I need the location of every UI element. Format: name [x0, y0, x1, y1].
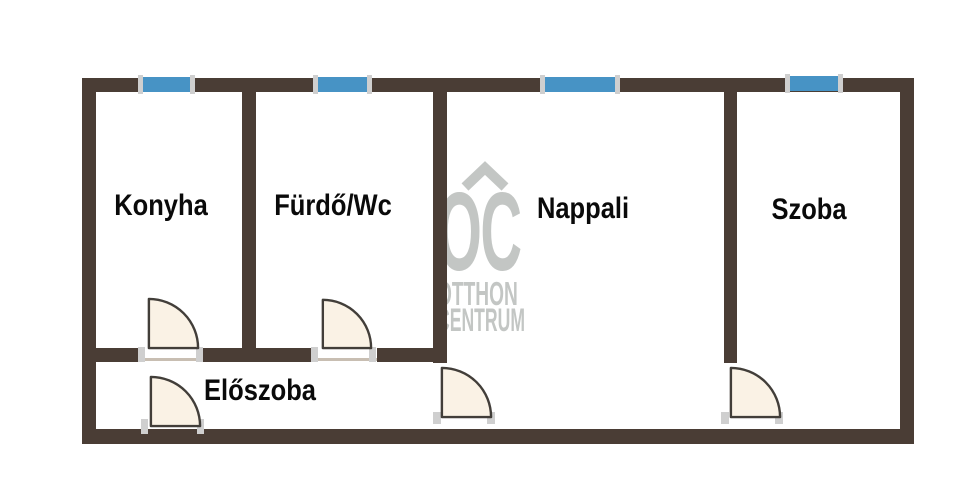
window-jamb-left	[138, 75, 143, 94]
wall-konyha-furdo	[242, 92, 256, 362]
wall-eloszoba-left	[96, 348, 142, 362]
room-label-furdo: Fürdő/Wc	[274, 191, 392, 221]
wall-eloszoba-right	[377, 348, 433, 362]
door-furdo	[320, 297, 373, 350]
door-nappali	[439, 365, 493, 419]
wall-right	[900, 78, 914, 444]
window-nappali	[545, 77, 615, 92]
door-entry	[148, 374, 202, 428]
window-jamb-left	[785, 74, 790, 93]
wall-left	[82, 78, 96, 444]
window-jamb-right	[367, 75, 372, 94]
watermark-logo: OC	[437, 177, 520, 288]
door-jamb	[141, 419, 148, 434]
floor-plan: OC OTTHON CENTRUM	[0, 0, 971, 500]
window-szoba	[790, 76, 838, 91]
room-label-eloszoba: Előszoba	[204, 376, 316, 406]
wall-nappali-szoba	[724, 92, 737, 363]
threshold-konyha-door	[142, 358, 202, 361]
door-szoba	[728, 365, 782, 419]
window-furdo	[318, 77, 367, 92]
window-konyha	[143, 77, 190, 92]
window-jamb-left	[313, 75, 318, 94]
wall-eloszoba-middle	[202, 348, 313, 362]
window-jamb-left	[540, 75, 545, 94]
threshold-furdo-door	[313, 358, 377, 361]
window-jamb-right	[838, 74, 843, 93]
room-label-konyha: Konyha	[114, 191, 208, 221]
room-label-szoba: Szoba	[771, 195, 846, 225]
door-konyha	[146, 296, 200, 350]
window-jamb-right	[190, 75, 195, 94]
door-jamb	[311, 347, 318, 362]
watermark-text-centrum: CENTRUM	[437, 304, 525, 336]
door-jamb	[138, 347, 145, 362]
room-label-nappali: Nappali	[537, 194, 629, 224]
window-jamb-right	[615, 75, 620, 94]
wall-nappali-left	[433, 92, 447, 363]
wall-bottom	[82, 429, 914, 444]
